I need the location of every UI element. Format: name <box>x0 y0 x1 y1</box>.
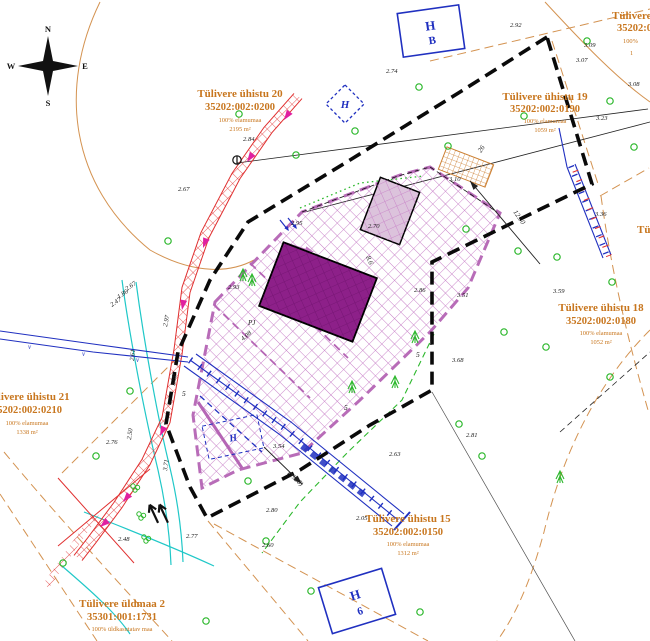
elevation-label: 3.71 <box>162 459 171 472</box>
parcel-usage: 100% elamumaa <box>6 420 49 427</box>
parcel-code: 35202:002:0190 <box>510 104 580 115</box>
bush-icon <box>137 512 146 520</box>
tree-icon <box>607 98 613 104</box>
tree-icon <box>308 588 314 594</box>
compass-w: W <box>7 61 16 71</box>
elevation-label: 3.07 <box>575 57 588 64</box>
parcel-usage: 100% elamumaa <box>580 330 623 337</box>
elevation-label: 2.63 <box>389 451 401 458</box>
parcel-code: 35202:002:0210 <box>0 405 62 416</box>
elevation-label: 3.68 <box>451 357 464 364</box>
h-marker-text: H <box>424 17 436 33</box>
parcel-usage: 100% elamumaa <box>387 541 430 548</box>
parcel-area: 1059 m² <box>534 127 555 134</box>
tree-icon <box>203 618 209 624</box>
elevation-label: 2.60 <box>262 542 274 549</box>
elevation-label: 3.10 <box>448 176 461 183</box>
tree-icon <box>352 128 358 134</box>
tree-icon <box>554 254 560 260</box>
lot-number: 1 <box>429 338 433 347</box>
elevation-label: 2.70 <box>368 223 380 230</box>
water-line-left: v v v <box>0 331 188 364</box>
elevation-label: 2.97 <box>162 314 171 327</box>
v-mark: v <box>28 343 32 351</box>
elevation-label: 2.74 <box>386 68 398 75</box>
tree-icon <box>416 84 422 90</box>
elevation-label: 2.05 <box>356 515 368 522</box>
parcel-name: Tülivere ühistu 20 <box>197 88 283 100</box>
parcel-name: Tülivere ühistu 19 <box>502 91 588 103</box>
h-marker-text: B <box>428 34 438 47</box>
elevation-label: 3.09 <box>583 42 596 49</box>
parcel-label-18: Tülivere ühistu 18 35202:002:0180 100% e… <box>558 302 644 346</box>
parcel-label-15: Tülivere ühistu 15 35202:002:0150 100% e… <box>365 513 451 557</box>
elevation-label: 2.61 <box>129 349 137 361</box>
tree-icon <box>607 374 613 380</box>
parcel-label-uldmaa-2: Tülivere üldmaa 2 35301:001:1731 100% ül… <box>79 598 165 633</box>
parcel-code: 35202:0 <box>617 23 650 34</box>
tree-icon <box>127 388 133 394</box>
compass-e: E <box>82 61 88 71</box>
tree-icon <box>456 421 462 427</box>
measurement-label: 26 <box>476 143 487 154</box>
h-marker-box-bottom: H 6 <box>318 568 395 633</box>
parcel-area: 2195 m² <box>229 126 250 133</box>
elevation-label: 3.54 <box>272 443 285 450</box>
elevation-label: 2.76 <box>106 439 118 446</box>
h-marker-text: 6 <box>356 605 365 618</box>
parcel-area: 1338 m² <box>16 429 37 436</box>
elevation-label: 3.09 <box>170 373 179 387</box>
parcel-name: Tülivere ühistu 18 <box>558 302 644 314</box>
parcel-label-19: Tülivere ühistu 19 35202:002:0190 100% e… <box>502 91 588 134</box>
elevation-label: 2.95 <box>291 220 303 227</box>
elevation-label: 2.50 <box>126 427 135 440</box>
h-marker-text: H <box>340 99 350 111</box>
parcel-name: Tülivere ühistu 21 <box>0 391 70 403</box>
elevation-label: 2.93 <box>228 284 240 291</box>
elevation-label: 2.48 <box>118 536 130 543</box>
compass-n: N <box>45 24 52 34</box>
cadastral-survey-map: v v v <box>0 0 650 641</box>
elevation-label: 2.67 <box>178 186 190 193</box>
lot-number: 5 <box>182 389 186 398</box>
parcel-label-right-clipped: Tü <box>637 224 650 236</box>
parcel-name: Tülivere <box>612 10 650 22</box>
compass-s: S <box>46 98 51 108</box>
elevation-label: 2.77 <box>186 533 198 540</box>
parcel-usage: 100% üldkasutatav maa <box>91 626 152 633</box>
parcel-usage: 100% elamumaa <box>219 117 262 124</box>
map-canvas: v v v <box>0 0 650 641</box>
spruce-icon <box>556 471 564 483</box>
pump-station-label: PJ <box>247 319 256 327</box>
note-label: (1990) <box>286 470 306 489</box>
drainage-lines-cyan <box>62 280 214 634</box>
tree-icon <box>501 329 507 335</box>
parcel-name: Tülivere üldmaa 2 <box>79 598 165 610</box>
parcel-usage: 100% elamumaa <box>524 118 567 125</box>
elevation-label: 2.92 <box>510 22 522 29</box>
parcel-code: 35202:002:0200 <box>205 102 275 113</box>
elevation-label: 3.51 <box>456 292 469 299</box>
h-marker-diamond: H <box>326 85 364 123</box>
tree-icon <box>245 478 251 484</box>
elevation-label: 3.23 <box>595 115 608 122</box>
elevation-label: 2.86 <box>414 287 426 294</box>
compass-star-icon <box>18 36 78 96</box>
tree-icon <box>543 344 549 350</box>
tree-icon <box>609 279 615 285</box>
parcel-code: 35202:002:0150 <box>373 527 443 538</box>
elevation-label: 2.84 <box>243 136 255 143</box>
parcel-code: 35301:001:1731 <box>87 612 157 623</box>
lot-number: 5 <box>416 350 420 359</box>
elevation-label: 3.08 <box>627 81 640 88</box>
elevation-label: 3.59 <box>552 288 565 295</box>
lot-number: 5 <box>344 403 348 412</box>
parcel-usage: 100% <box>623 38 639 45</box>
h-marker-box-top: H B <box>397 5 465 57</box>
parcel-area: 1 <box>630 50 633 57</box>
parcel-area: 1052 m² <box>590 339 611 346</box>
parcel-label-topright-clipped: Tülivere 35202:0 100% 1 <box>612 10 650 57</box>
tree-icon <box>631 144 637 150</box>
parcel-label-21: Tülivere ühistu 21 35202:002:0210 100% e… <box>0 391 70 436</box>
parcel-code: 35202:002:0180 <box>566 316 636 327</box>
tree-icon <box>417 609 423 615</box>
spruce-icon <box>391 376 399 388</box>
tree-icon <box>515 248 521 254</box>
tree-icon <box>479 453 485 459</box>
tree-icon <box>93 453 99 459</box>
elevation-label: 3.36 <box>594 211 607 218</box>
elevation-label: 2.80 <box>266 507 278 514</box>
survey-point-icon <box>233 156 241 164</box>
utility-corridor-right <box>559 128 611 258</box>
h-marker-text: H <box>348 586 362 603</box>
parcel-name: Tülivere ühistu 15 <box>365 513 451 525</box>
elevation-label: 2.81 <box>466 432 478 439</box>
parcel-area: 1312 m² <box>397 550 418 557</box>
tree-icon <box>165 238 171 244</box>
